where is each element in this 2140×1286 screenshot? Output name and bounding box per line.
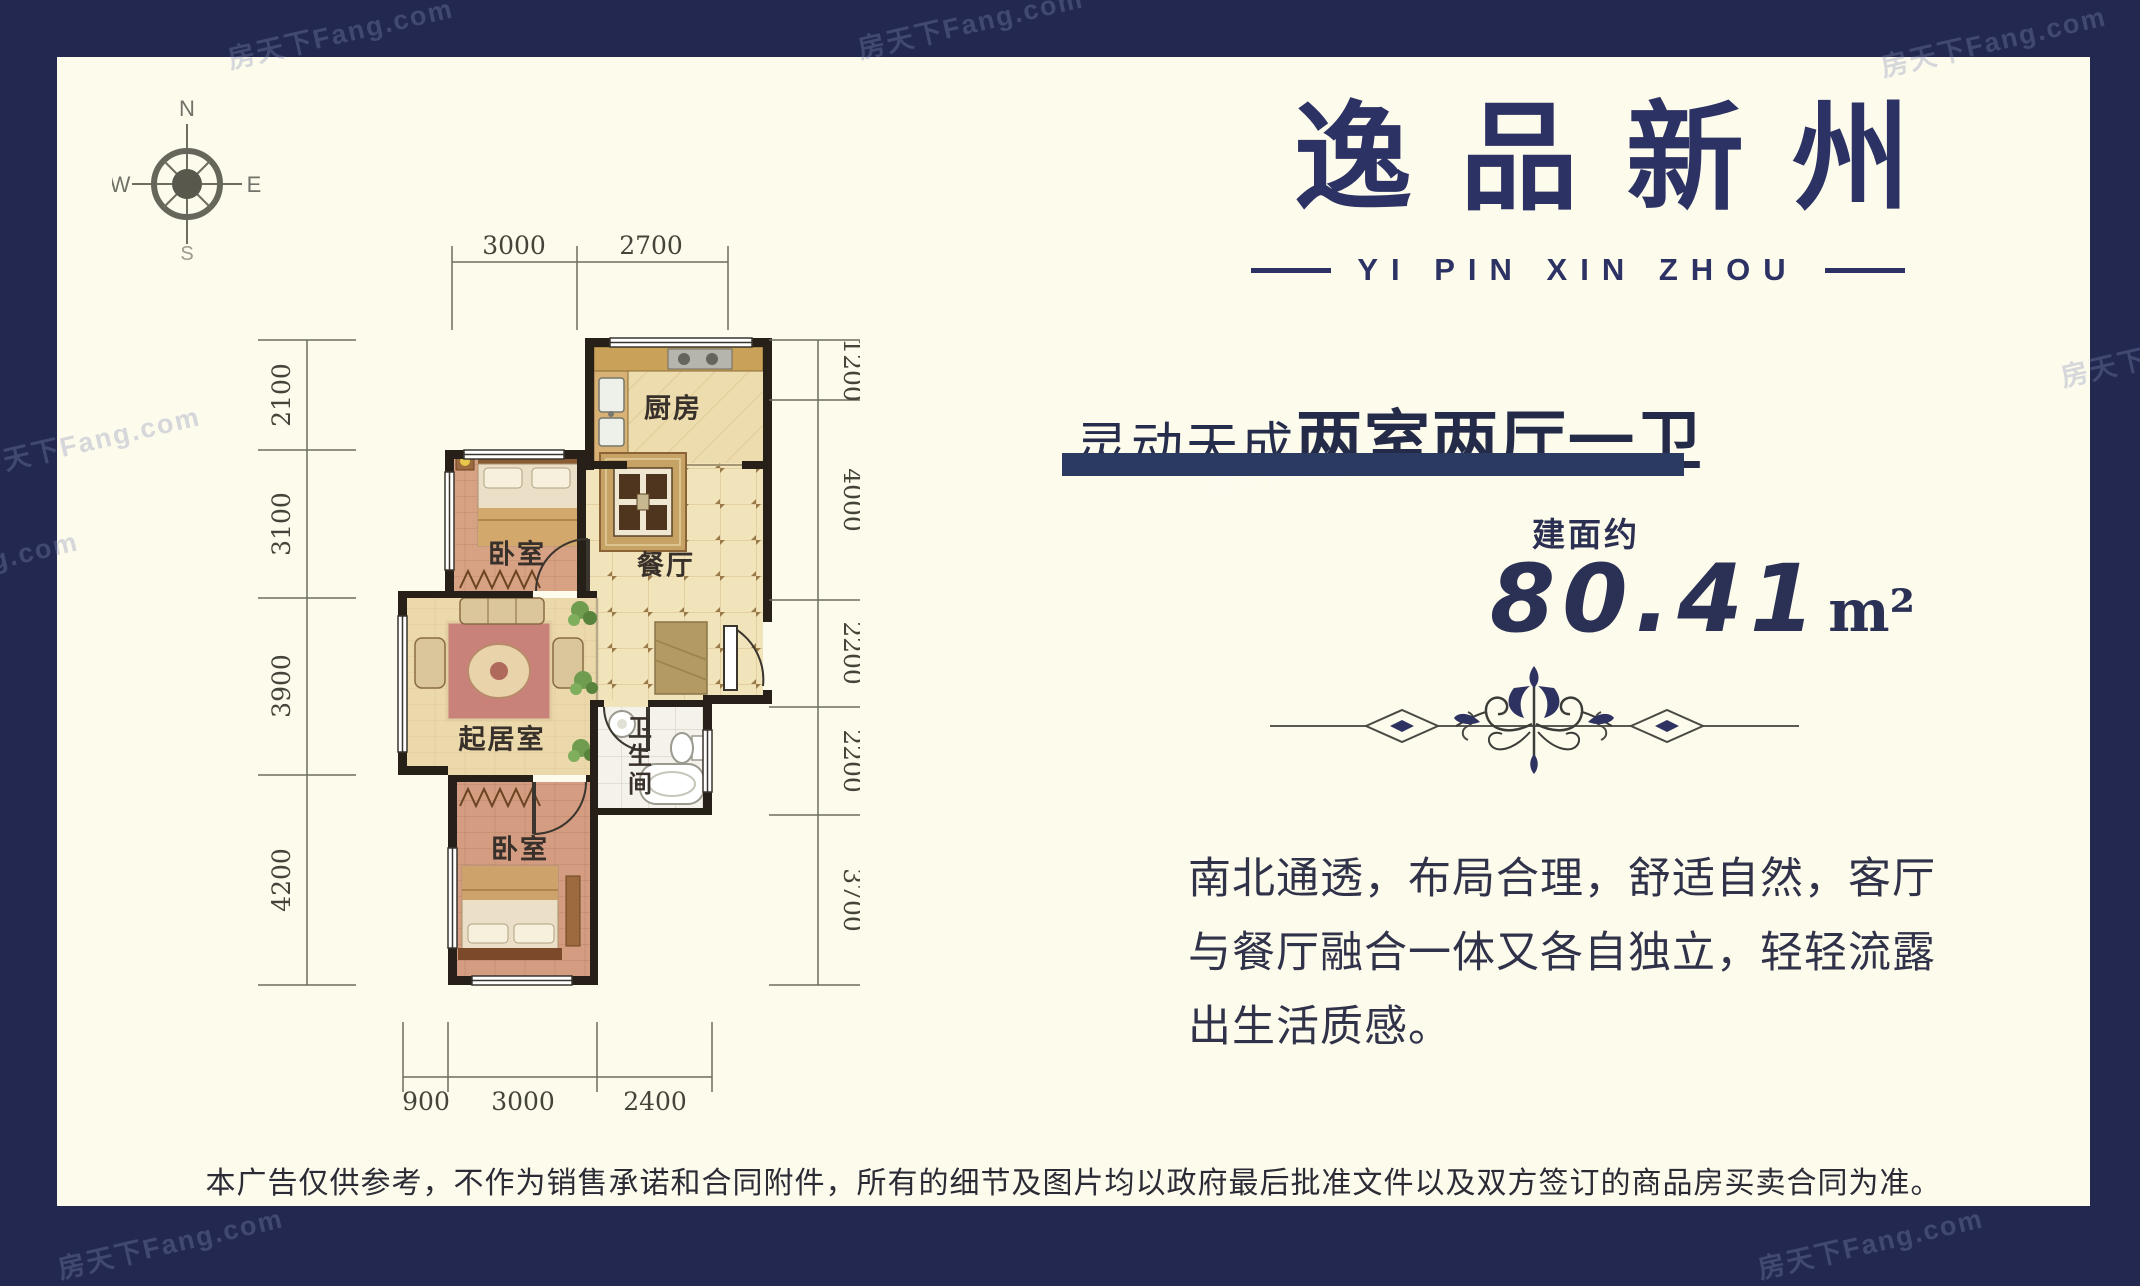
floorplan-drawing: 3000 2700 2100 3100 3900 4200 1200 4000 … xyxy=(240,225,860,1125)
ornamental-divider xyxy=(1262,662,1807,780)
window-icon xyxy=(610,338,752,347)
dim-right-3: 2200 xyxy=(838,621,860,685)
flourish-icon xyxy=(1262,662,1807,780)
dim-left-1: 2100 xyxy=(267,363,296,427)
room-label-bedroom1: 卧室 xyxy=(488,533,546,572)
area-unit: m² xyxy=(1828,577,1915,645)
window-icon xyxy=(445,472,454,570)
tagline-underline xyxy=(1062,453,1684,476)
room-label-dining: 餐厅 xyxy=(637,544,695,583)
dim-right-2: 4000 xyxy=(838,468,860,532)
window-icon xyxy=(703,730,712,792)
window-icon xyxy=(448,848,457,948)
area-row: 80.41m² xyxy=(1400,545,1915,654)
window-icon xyxy=(398,616,407,752)
window-icon xyxy=(464,450,564,459)
compass-e-label: E xyxy=(247,172,262,197)
window-icon xyxy=(472,976,572,985)
dim-bottom-3: 2400 xyxy=(623,1087,687,1116)
description-line-1: 南北通透，布局合理，舒适自然，客厅 xyxy=(1188,843,1936,917)
watermark-text: 房天下Fang.com xyxy=(1754,1197,1987,1286)
project-subtitle-row: YI PIN XIN ZHOU xyxy=(1148,252,2008,288)
dim-left-4: 4200 xyxy=(267,848,296,912)
room-label-kitchen: 厨房 xyxy=(644,387,702,426)
room-label-bedroom2: 卧室 xyxy=(491,828,549,867)
subtitle-dash-icon xyxy=(1825,268,1905,273)
room-label-bathroom: 卫生间 xyxy=(620,715,655,799)
dim-right-1: 1200 xyxy=(838,338,860,402)
area-value: 80.41 xyxy=(1490,545,1822,654)
compass-n-label: N xyxy=(179,96,195,121)
compass-s-label: S xyxy=(180,243,193,261)
floorplan: 3000 2700 2100 3100 3900 4200 1200 4000 … xyxy=(240,225,860,1125)
project-subtitle: YI PIN XIN ZHOU xyxy=(1357,252,1798,288)
entry-mat xyxy=(655,622,707,694)
description-line-2: 与餐厅融合一体又各自独立，轻轻流露 xyxy=(1188,917,1936,991)
description-line-3: 出生活质感。 xyxy=(1188,991,1936,1065)
compass-w-label: W xyxy=(112,172,131,197)
disclaimer-text: 本广告仅供参考，不作为销售承诺和合同附件，所有的细节及图片均以政府最后批准文件以… xyxy=(57,1158,2090,1202)
room-label-living: 起居室 xyxy=(459,718,546,757)
poster-root: { "watermark": "房天下Fang.com", "brand": {… xyxy=(0,0,2140,1260)
subtitle-dash-icon xyxy=(1251,268,1331,273)
dim-bottom-1: 900 xyxy=(402,1087,450,1116)
dim-left-2: 3100 xyxy=(267,492,296,556)
dim-bottom-2: 3000 xyxy=(491,1087,555,1116)
watermark-text: 房天下Fang.com xyxy=(54,1197,287,1286)
dim-right-4: 2200 xyxy=(838,729,860,793)
dim-top-2: 2700 xyxy=(619,231,683,260)
description-text: 南北通透，布局合理，舒适自然，客厅 与餐厅融合一体又各自独立，轻轻流露 出生活质… xyxy=(1188,843,1936,1065)
dim-left-3: 3900 xyxy=(267,654,296,718)
dim-right-5: 3700 xyxy=(838,868,860,932)
project-title: 逸品新州 xyxy=(1148,84,2056,234)
dim-top-1: 3000 xyxy=(482,231,546,260)
